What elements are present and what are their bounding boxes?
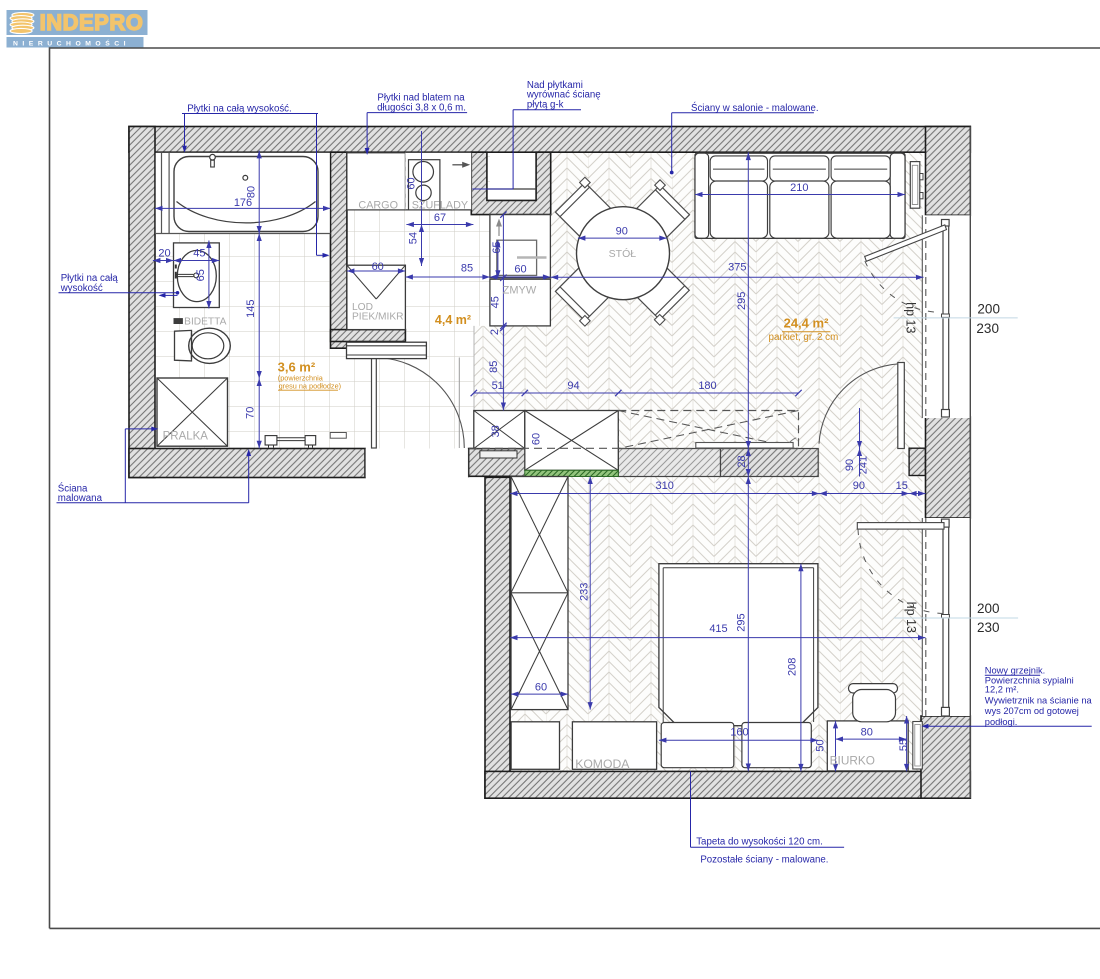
- svg-text:90: 90: [853, 480, 865, 492]
- svg-text:90: 90: [844, 459, 856, 471]
- svg-text:180: 180: [698, 380, 716, 392]
- svg-text:PRALKA: PRALKA: [163, 430, 209, 442]
- svg-text:200: 200: [977, 302, 1000, 317]
- svg-text:45: 45: [490, 296, 502, 308]
- svg-text:12,2 m².: 12,2 m².: [985, 685, 1019, 695]
- svg-text:STÓŁ: STÓŁ: [609, 247, 637, 260]
- svg-text:65: 65: [195, 269, 207, 281]
- svg-text:gresu na podłodze): gresu na podłodze): [279, 382, 341, 391]
- svg-text:375: 375: [728, 262, 746, 274]
- svg-text:65: 65: [491, 241, 503, 253]
- svg-text:145: 145: [245, 300, 257, 318]
- svg-text:NIERUCHOMOŚCI: NIERUCHOMOŚCI: [13, 39, 130, 48]
- svg-text:15: 15: [896, 480, 908, 492]
- svg-text:55: 55: [898, 739, 910, 751]
- svg-text:wys 207cm od gotowej: wys 207cm od gotowej: [984, 706, 1079, 716]
- svg-text:85: 85: [488, 361, 500, 373]
- svg-text:38: 38: [490, 425, 502, 437]
- svg-text:70: 70: [244, 407, 256, 419]
- svg-text:PIEK/MIKR: PIEK/MIKR: [352, 311, 404, 322]
- svg-text:Pozostałe ściany - malowane.: Pozostałe ściany - malowane.: [700, 855, 828, 866]
- svg-text:2: 2: [489, 329, 501, 335]
- svg-text:230: 230: [976, 321, 999, 336]
- svg-text:67: 67: [434, 212, 446, 224]
- svg-text:INDEPRO: INDEPRO: [40, 10, 144, 35]
- svg-text:50: 50: [815, 739, 827, 751]
- svg-text:310: 310: [656, 480, 674, 492]
- svg-text:24,4 m²: 24,4 m²: [784, 316, 829, 331]
- svg-text:230: 230: [977, 620, 1000, 635]
- svg-text:295: 295: [736, 292, 748, 310]
- svg-text:płytą g-k: płytą g-k: [527, 100, 564, 111]
- svg-text:241: 241: [857, 456, 869, 474]
- svg-text:45: 45: [193, 247, 205, 259]
- svg-text:BIDETTA: BIDETTA: [184, 316, 226, 327]
- svg-text:Wywietrznik na ścianie na: Wywietrznik na ścianie na: [985, 696, 1093, 706]
- svg-text:94: 94: [567, 380, 579, 392]
- svg-text:54: 54: [407, 232, 419, 244]
- svg-text:80: 80: [245, 186, 257, 198]
- svg-text:200: 200: [977, 601, 1000, 616]
- svg-text:4,4 m²: 4,4 m²: [435, 313, 471, 327]
- svg-text:długości 3,8 x 0,6 m.: długości 3,8 x 0,6 m.: [377, 102, 466, 113]
- svg-text:28: 28: [736, 455, 748, 467]
- svg-text:20: 20: [158, 247, 170, 259]
- svg-text:85: 85: [461, 262, 473, 274]
- svg-text:208: 208: [786, 658, 798, 676]
- svg-text:CARGO: CARGO: [358, 200, 398, 212]
- svg-text:60: 60: [406, 177, 418, 189]
- svg-text:parkiet, gr. 2 cm: parkiet, gr. 2 cm: [769, 332, 839, 343]
- svg-text:60: 60: [372, 261, 384, 273]
- svg-text:90: 90: [616, 225, 628, 237]
- svg-text:hp 13: hp 13: [903, 302, 917, 333]
- svg-text:3,6 m²: 3,6 m²: [278, 360, 316, 375]
- svg-text:BIURKO: BIURKO: [830, 753, 875, 767]
- svg-text:KOMODA: KOMODA: [575, 757, 630, 771]
- svg-text:233: 233: [579, 583, 591, 601]
- svg-text:SZUFLADY: SZUFLADY: [412, 200, 468, 212]
- svg-text:Płytki na całą wysokość.: Płytki na całą wysokość.: [187, 104, 291, 115]
- svg-text:160: 160: [730, 727, 748, 739]
- svg-text:Tapeta do wysokości 120 cm.: Tapeta do wysokości 120 cm.: [696, 836, 823, 847]
- svg-text:Ściany w salonie - malowane.: Ściany w salonie - malowane.: [691, 102, 819, 114]
- svg-text:60: 60: [530, 433, 542, 445]
- svg-text:podłogi.: podłogi.: [985, 717, 1018, 727]
- svg-text:ZMYW: ZMYW: [503, 284, 537, 296]
- svg-text:Nowy grzejnik.: Nowy grzejnik.: [985, 665, 1045, 675]
- svg-text:51: 51: [492, 380, 504, 392]
- svg-text:295: 295: [735, 613, 747, 631]
- svg-text:210: 210: [790, 182, 808, 194]
- svg-text:80: 80: [861, 727, 873, 739]
- svg-text:60: 60: [514, 264, 526, 276]
- svg-text:hp 13: hp 13: [904, 602, 918, 633]
- svg-text:415: 415: [709, 623, 727, 635]
- svg-text:60: 60: [535, 681, 547, 693]
